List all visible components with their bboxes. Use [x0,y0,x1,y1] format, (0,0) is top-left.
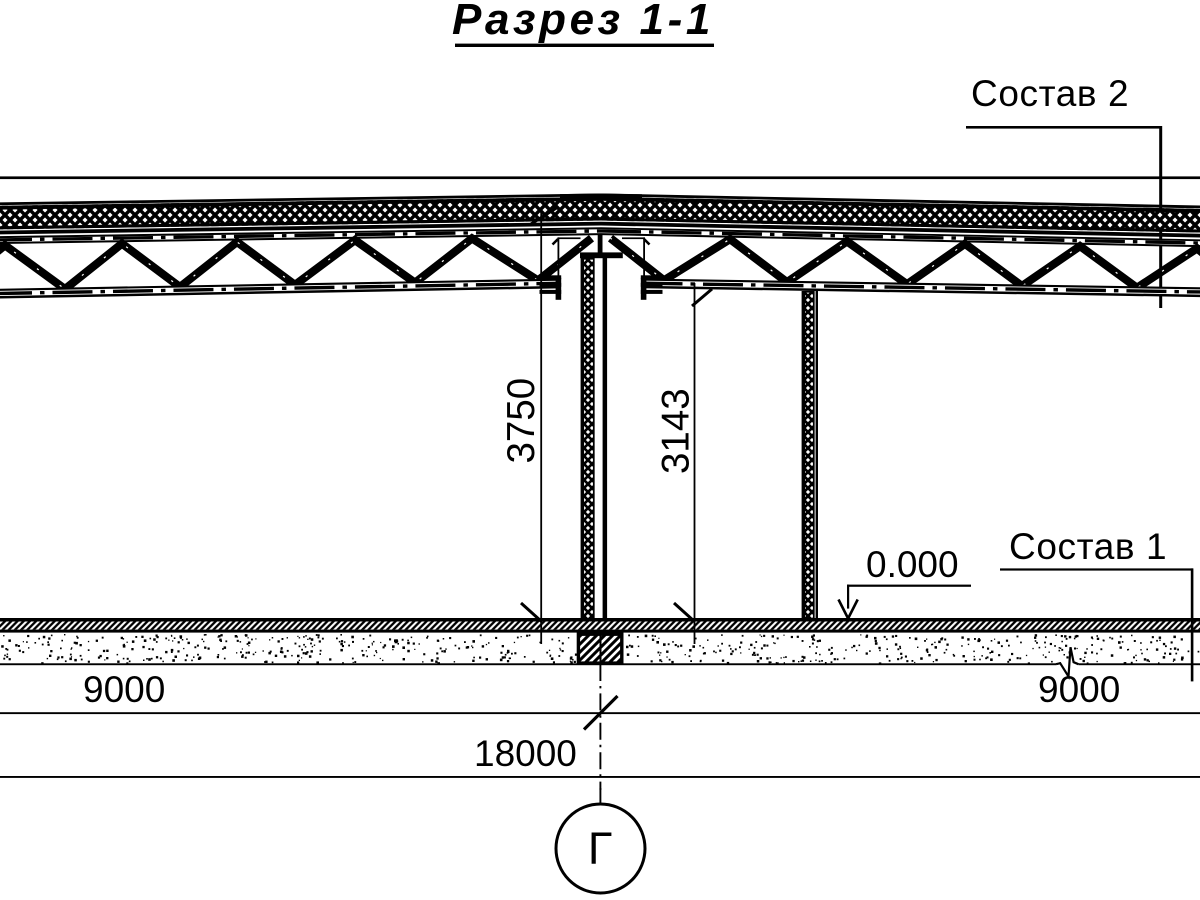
svg-text:Состав 1: Состав 1 [1009,526,1167,567]
svg-text:18000: 18000 [474,733,577,774]
svg-text:Г: Г [588,823,612,874]
svg-text:3750: 3750 [500,378,543,464]
svg-text:Состав 2: Состав 2 [971,73,1129,114]
svg-text:9000: 9000 [83,669,165,710]
svg-text:9000: 9000 [1038,669,1120,710]
svg-text:Разрез 1-1: Разрез 1-1 [452,0,714,44]
svg-text:0.000: 0.000 [866,544,959,585]
svg-text:3143: 3143 [655,388,698,474]
